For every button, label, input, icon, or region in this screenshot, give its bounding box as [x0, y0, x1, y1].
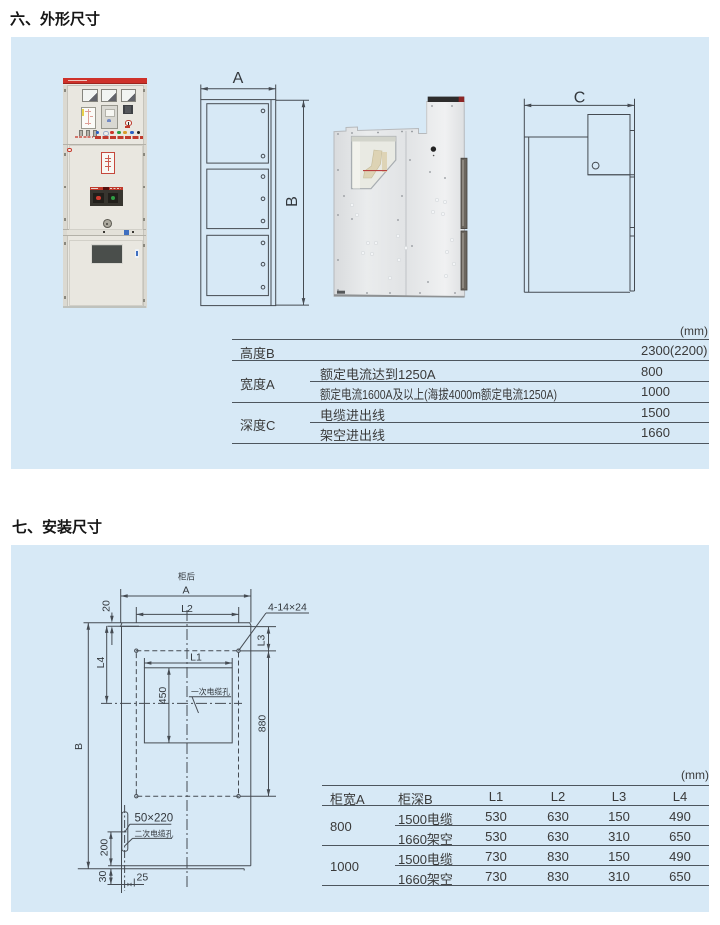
svg-text:50×220: 50×220 — [135, 813, 174, 825]
svg-text:B: B — [284, 196, 301, 207]
svg-text:一次电缆孔: 一次电缆孔 — [191, 687, 230, 697]
svg-text:L3: L3 — [256, 635, 268, 647]
svg-text:B: B — [73, 743, 85, 750]
svg-text:A: A — [182, 585, 189, 597]
svg-text:20: 20 — [101, 600, 113, 612]
svg-text:柜后: 柜后 — [178, 572, 196, 582]
svg-text:450: 450 — [157, 687, 169, 705]
svg-text:A: A — [233, 70, 244, 87]
svg-text:4-14×24: 4-14×24 — [268, 602, 307, 614]
svg-text:C: C — [574, 90, 586, 107]
svg-text:二次电缆孔: 二次电缆孔 — [135, 829, 174, 839]
svg-text:30: 30 — [97, 871, 109, 883]
svg-text:L1: L1 — [190, 652, 202, 664]
svg-text:880: 880 — [257, 715, 269, 733]
svg-text:200: 200 — [99, 839, 111, 857]
svg-text:L4: L4 — [95, 657, 107, 669]
svg-text:25: 25 — [137, 872, 149, 884]
